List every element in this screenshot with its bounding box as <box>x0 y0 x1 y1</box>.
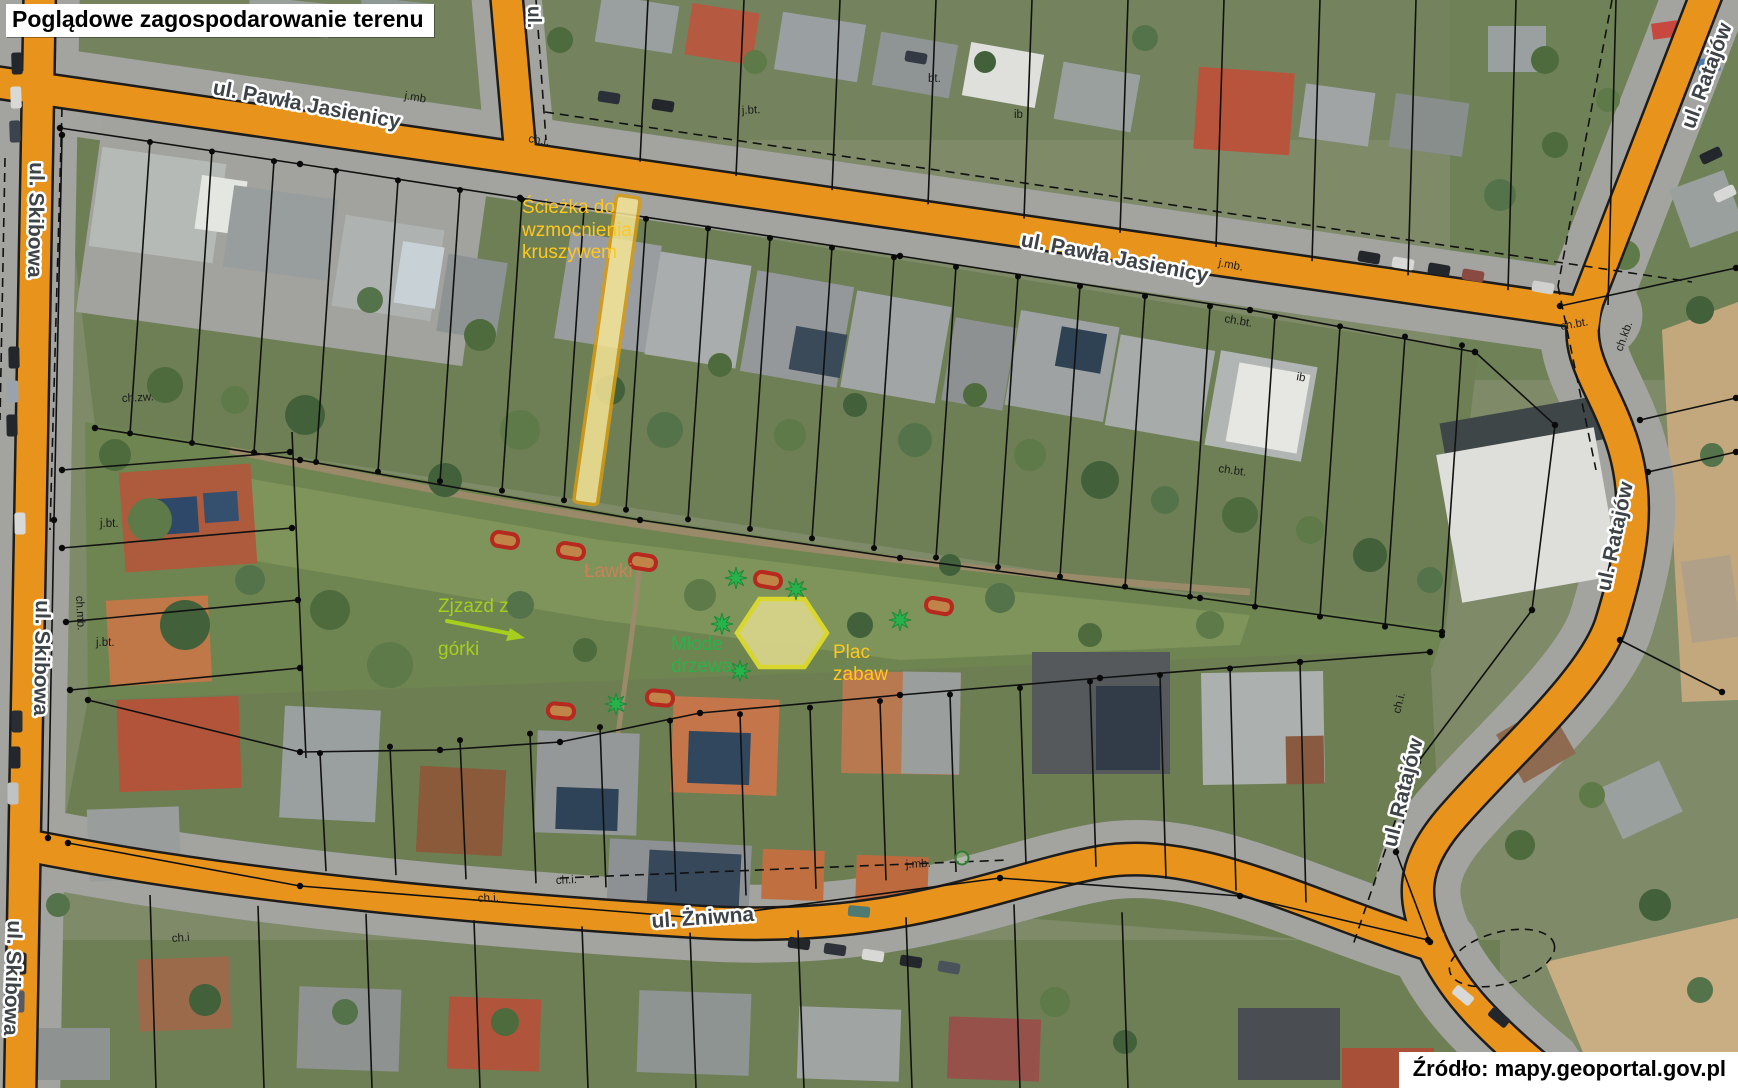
survey-label: ch.i. <box>478 892 500 905</box>
bench-marker <box>547 703 574 719</box>
tree <box>847 612 873 638</box>
building <box>223 185 338 281</box>
survey-dot <box>457 187 463 193</box>
survey-dot <box>67 687 73 693</box>
survey-dot <box>271 158 277 164</box>
survey-dot <box>1157 672 1163 678</box>
car <box>8 346 19 368</box>
gravel-path-label-line2: wzmocnienia <box>521 220 632 241</box>
tree <box>235 565 265 595</box>
survey-dot <box>1382 624 1388 630</box>
tree <box>1296 516 1324 544</box>
survey-dot <box>1247 307 1253 313</box>
tree <box>1040 987 1070 1017</box>
survey-dot <box>147 139 153 145</box>
survey-dot <box>1337 323 1343 329</box>
survey-dot <box>829 245 835 251</box>
survey-dot <box>1227 666 1233 672</box>
survey-dot <box>809 535 815 541</box>
gravel-path-label-line1: Ścieżka do <box>522 196 615 218</box>
source-attribution: Źródło: mapy.geoportal.gov.pl <box>1399 1052 1738 1088</box>
building <box>279 706 381 823</box>
survey-dot <box>209 149 215 155</box>
tree <box>1687 977 1713 1003</box>
benches-label: Ławki <box>584 561 633 582</box>
building <box>1286 736 1325 785</box>
survey-dot <box>1645 469 1651 475</box>
survey-label: j.bt. <box>99 518 119 530</box>
survey-dot <box>1087 679 1093 685</box>
survey-dot <box>1187 594 1193 600</box>
survey-dot <box>643 216 649 222</box>
survey-dot <box>1017 685 1023 691</box>
survey-dot <box>297 883 303 889</box>
street-label-skibowa-1: ul. Skibowa <box>23 162 48 278</box>
tree <box>506 591 534 619</box>
survey-dot <box>289 525 295 531</box>
young-tree-marker <box>605 693 627 715</box>
survey-dot <box>317 750 323 756</box>
young-trees-label-line1: Młode <box>671 634 723 655</box>
tree <box>1686 296 1714 324</box>
street-label-north-stub: ul. <box>523 6 544 28</box>
tree <box>332 999 358 1025</box>
car <box>848 905 871 918</box>
survey-dot <box>387 744 393 750</box>
survey-dot <box>1252 604 1258 610</box>
tree <box>743 50 767 74</box>
tree <box>1531 46 1559 74</box>
survey-dot <box>807 705 813 711</box>
survey-dot <box>333 168 339 174</box>
building <box>840 290 952 403</box>
survey-dot <box>297 749 303 755</box>
survey-dot <box>457 737 463 743</box>
survey-dot <box>947 692 953 698</box>
survey-dot <box>63 619 69 625</box>
tree <box>1579 782 1605 808</box>
survey-dot <box>59 467 65 473</box>
survey-dot <box>1272 313 1278 319</box>
survey-dot <box>251 449 257 455</box>
tree <box>1132 25 1158 51</box>
car <box>12 711 23 733</box>
young-tree-marker <box>711 613 733 635</box>
survey-label: bt. <box>928 73 941 85</box>
survey-dot <box>1122 584 1128 590</box>
tree <box>357 287 383 313</box>
tree <box>708 353 732 377</box>
survey-dot <box>295 597 301 603</box>
survey-dot <box>1552 422 1558 428</box>
tree <box>1014 439 1046 471</box>
survey-dot <box>1557 303 1563 309</box>
slide-label-line2: górki <box>438 639 479 660</box>
tree <box>1196 611 1224 639</box>
survey-dot <box>897 253 903 259</box>
survey-dot <box>59 545 65 551</box>
survey-label: j.bt. <box>741 104 761 117</box>
survey-dot <box>705 225 711 231</box>
building <box>1096 686 1160 770</box>
building <box>38 1028 110 1080</box>
young-trees-label-line2: drzewa <box>671 656 733 677</box>
building <box>1238 1008 1340 1080</box>
survey-dot <box>1317 614 1323 620</box>
survey-dot <box>897 555 903 561</box>
tree <box>160 600 210 650</box>
survey-dot <box>1425 937 1431 943</box>
survey-dot <box>877 698 883 704</box>
map-screenshot: Ścieżka do wzmocnienia kruszywem Ławki Z… <box>0 0 1738 1088</box>
tree <box>898 423 932 457</box>
building <box>797 1006 901 1082</box>
survey-dot <box>297 161 303 167</box>
bench-marker <box>629 553 657 571</box>
tree <box>843 393 867 417</box>
survey-dot <box>437 747 443 753</box>
car <box>8 783 19 805</box>
tree <box>189 984 221 1016</box>
tree <box>1505 830 1535 860</box>
building <box>644 251 751 368</box>
building <box>1193 67 1294 155</box>
tree <box>1081 461 1119 499</box>
survey-dot <box>59 132 65 138</box>
tree <box>1417 567 1443 593</box>
car <box>14 512 25 534</box>
survey-dot <box>871 545 877 551</box>
survey-dot <box>1142 293 1148 299</box>
young-tree-marker <box>889 609 911 631</box>
building <box>1105 334 1216 441</box>
survey-dot <box>1529 607 1535 613</box>
building <box>447 996 541 1071</box>
tree <box>128 498 172 542</box>
car <box>7 380 18 402</box>
tree <box>684 579 716 611</box>
tree <box>1078 623 1102 647</box>
bench-marker <box>754 571 782 589</box>
survey-dot <box>997 875 1003 881</box>
survey-dot <box>85 697 91 703</box>
survey-dot <box>499 488 505 494</box>
tree <box>491 1008 519 1036</box>
survey-dot <box>1207 303 1213 309</box>
survey-dot <box>1439 632 1445 638</box>
survey-dot <box>189 440 195 446</box>
building <box>1389 93 1470 157</box>
survey-dot <box>65 840 71 846</box>
survey-dot <box>1057 574 1063 580</box>
survey-label: ib <box>1014 109 1023 121</box>
street-label-skibowa-2: ul. Skibowa <box>29 600 54 716</box>
map-canvas: Ścieżka do wzmocnienia kruszywem Ławki Z… <box>0 0 1738 1088</box>
survey-dot <box>1237 893 1243 899</box>
tree <box>985 583 1015 613</box>
tree <box>221 386 249 414</box>
gravel-path-label-line3: kruszywem <box>522 242 617 263</box>
survey-dot <box>637 517 643 523</box>
tree <box>547 27 573 53</box>
building <box>947 1016 1041 1081</box>
survey-dot <box>597 724 603 730</box>
survey-dot <box>667 718 673 724</box>
page-title: Poglądowe zagospodarowanie terenu <box>6 4 434 37</box>
young-tree-marker <box>725 567 747 589</box>
bench-marker <box>646 690 673 706</box>
tree <box>974 51 996 73</box>
tree <box>310 590 350 630</box>
survey-dot <box>527 731 533 737</box>
survey-dot <box>1393 849 1399 855</box>
survey-dot <box>897 692 903 698</box>
building <box>789 326 848 378</box>
tree <box>428 463 462 497</box>
tree <box>1353 538 1387 572</box>
building <box>555 787 618 831</box>
car <box>11 52 23 74</box>
survey-dot <box>1402 333 1408 339</box>
tree <box>46 893 70 917</box>
survey-dot <box>1015 273 1021 279</box>
car <box>6 414 17 436</box>
survey-dot <box>92 425 98 431</box>
survey-label: ch.i. <box>556 874 578 887</box>
slide-label-line1: Zjzazd z <box>438 596 509 617</box>
survey-dot <box>1427 649 1433 655</box>
survey-dot <box>1472 349 1478 355</box>
building <box>1055 326 1107 373</box>
street-label-skibowa-3: ul. Skibowa <box>0 920 26 1037</box>
tree <box>963 383 987 407</box>
tree <box>1151 486 1179 514</box>
tree <box>367 642 413 688</box>
survey-dot <box>557 739 563 745</box>
survey-label: j.mb. <box>905 858 932 871</box>
young-tree-marker <box>785 578 807 600</box>
survey-point-circle <box>956 852 969 865</box>
survey-dot <box>623 507 629 513</box>
bench-marker <box>491 531 519 549</box>
survey-dot <box>297 665 303 671</box>
survey-dot <box>287 449 293 455</box>
tree <box>647 412 683 448</box>
tree <box>464 319 496 351</box>
survey-dot <box>437 478 443 484</box>
bench-marker <box>925 597 953 615</box>
building <box>297 986 402 1072</box>
survey-dot <box>395 177 401 183</box>
playground-hexagon <box>737 599 827 667</box>
survey-dot <box>57 125 63 131</box>
building <box>1299 83 1376 146</box>
survey-dot <box>1459 342 1465 348</box>
survey-dot <box>697 710 703 716</box>
building <box>116 696 241 792</box>
survey-dot <box>1617 637 1623 643</box>
survey-dot <box>767 235 773 241</box>
survey-label: j.bt. <box>95 637 115 649</box>
survey-dot <box>933 555 939 561</box>
car <box>9 120 21 142</box>
survey-dot <box>953 264 959 270</box>
survey-dot <box>1077 283 1083 289</box>
survey-dot <box>1719 689 1725 695</box>
survey-dot <box>561 497 567 503</box>
survey-dot <box>1197 595 1203 601</box>
survey-dot <box>747 526 753 532</box>
survey-dot <box>1297 659 1303 665</box>
survey-dot <box>313 459 319 465</box>
survey-dot <box>1637 417 1643 423</box>
survey-dot <box>891 254 897 260</box>
survey-label: ch.mb. <box>73 596 87 631</box>
survey-label: ch.i <box>171 932 190 945</box>
playground-label-line2: zabaw <box>833 664 888 685</box>
tree <box>1222 497 1258 533</box>
playground-label-line1: Plac <box>833 642 870 663</box>
survey-dot <box>51 517 57 523</box>
building <box>203 491 239 523</box>
car <box>10 747 21 769</box>
car <box>10 86 22 108</box>
survey-dot <box>375 469 381 475</box>
survey-dot <box>45 835 51 841</box>
survey-dot <box>685 516 691 522</box>
tree <box>1596 88 1620 112</box>
survey-dot <box>995 564 1001 570</box>
tree <box>1639 889 1671 921</box>
tree <box>573 638 597 662</box>
tree <box>1113 1030 1137 1054</box>
tree <box>774 419 806 451</box>
survey-dot <box>297 457 303 463</box>
bench-marker <box>557 542 585 560</box>
survey-dot <box>737 711 743 717</box>
survey-dot <box>1097 675 1103 681</box>
survey-label: ch.zw. <box>122 391 155 405</box>
young-tree-marker <box>729 660 751 682</box>
tree <box>1542 132 1568 158</box>
survey-dot <box>127 430 133 436</box>
